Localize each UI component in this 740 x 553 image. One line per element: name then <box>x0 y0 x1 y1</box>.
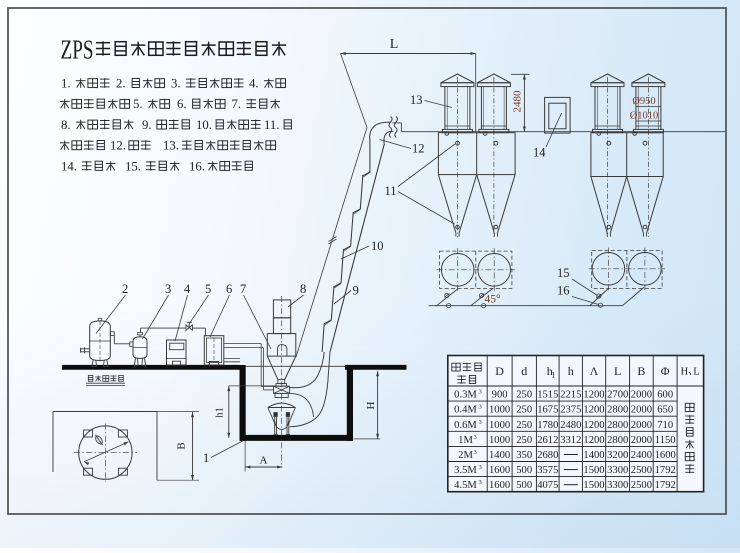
svg-text:H: H <box>681 367 689 378</box>
svg-text:10: 10 <box>371 239 384 253</box>
svg-text:1600: 1600 <box>489 480 510 491</box>
svg-text:2800: 2800 <box>607 420 628 431</box>
svg-text:7.: 7. <box>232 97 242 111</box>
svg-text:1200: 1200 <box>583 420 604 431</box>
svg-text:500: 500 <box>516 465 532 476</box>
svg-text:3: 3 <box>479 404 482 411</box>
svg-text:3.5M: 3.5M <box>454 465 477 476</box>
svg-text:600: 600 <box>657 390 673 401</box>
svg-text:1675: 1675 <box>537 405 558 416</box>
svg-text:2000: 2000 <box>631 420 652 431</box>
svg-text:500: 500 <box>516 480 532 491</box>
svg-text:L: L <box>693 367 699 378</box>
svg-text:H: H <box>365 401 377 409</box>
svg-text:15.: 15. <box>125 159 141 173</box>
svg-text:8: 8 <box>300 282 306 296</box>
svg-text:B: B <box>637 364 645 378</box>
svg-text:0.3M: 0.3M <box>454 390 477 401</box>
svg-text:1792: 1792 <box>655 480 676 491</box>
svg-text:1500: 1500 <box>583 465 604 476</box>
svg-text:3.: 3. <box>171 77 181 91</box>
svg-text:3: 3 <box>479 479 482 486</box>
svg-text:1200: 1200 <box>583 405 604 416</box>
svg-text:45°: 45° <box>485 294 502 306</box>
svg-text:2400: 2400 <box>631 450 652 461</box>
svg-text:8.: 8. <box>61 118 71 132</box>
svg-text:1780: 1780 <box>537 420 558 431</box>
svg-text:14.: 14. <box>61 159 77 173</box>
svg-text:710: 710 <box>657 420 673 431</box>
svg-text:0.6M: 0.6M <box>454 420 477 431</box>
svg-text:2000: 2000 <box>631 390 652 401</box>
svg-text:2680: 2680 <box>537 450 558 461</box>
svg-text:3: 3 <box>479 389 482 396</box>
svg-text:3: 3 <box>165 282 171 296</box>
svg-text:1: 1 <box>203 451 209 465</box>
svg-text:1792: 1792 <box>655 465 676 476</box>
svg-text:250: 250 <box>516 390 532 401</box>
svg-text:3300: 3300 <box>607 465 628 476</box>
svg-text:B: B <box>176 442 188 449</box>
svg-text:1.: 1. <box>61 77 71 91</box>
svg-text:2000: 2000 <box>631 435 652 446</box>
svg-text:Φ: Φ <box>661 364 670 378</box>
svg-text:900: 900 <box>492 390 508 401</box>
svg-text:16: 16 <box>557 284 570 298</box>
svg-text:Λ: Λ <box>590 364 599 378</box>
svg-text:2700: 2700 <box>607 390 628 401</box>
svg-text:4075: 4075 <box>537 480 558 491</box>
svg-text:3: 3 <box>479 419 482 426</box>
svg-text:3300: 3300 <box>607 480 628 491</box>
svg-text:650: 650 <box>657 405 673 416</box>
svg-text:3575: 3575 <box>537 465 558 476</box>
svg-text:2480: 2480 <box>512 90 524 113</box>
svg-text:h1: h1 <box>215 407 226 418</box>
svg-text:2500: 2500 <box>631 465 652 476</box>
svg-text:13: 13 <box>410 93 423 107</box>
svg-text:Ø1010: Ø1010 <box>630 111 659 122</box>
svg-text:1200: 1200 <box>583 435 604 446</box>
svg-text:12: 12 <box>412 142 425 156</box>
svg-text:5: 5 <box>205 282 211 296</box>
svg-text:1200: 1200 <box>583 390 604 401</box>
svg-text:3: 3 <box>479 464 482 471</box>
svg-text:d: d <box>521 364 527 378</box>
svg-text:2375: 2375 <box>560 405 581 416</box>
svg-text:1000: 1000 <box>489 405 510 416</box>
svg-text:11: 11 <box>385 184 397 198</box>
svg-text:A: A <box>260 455 268 467</box>
svg-text:2000: 2000 <box>631 405 652 416</box>
svg-text:250: 250 <box>516 435 532 446</box>
svg-text:7: 7 <box>240 282 246 296</box>
svg-text:13.: 13. <box>163 139 179 153</box>
svg-text:1500: 1500 <box>583 480 604 491</box>
svg-text:1600: 1600 <box>489 465 510 476</box>
svg-text:9: 9 <box>353 284 359 298</box>
svg-text:3: 3 <box>474 449 477 456</box>
svg-text:6: 6 <box>226 282 232 296</box>
svg-text:2.: 2. <box>116 77 126 91</box>
svg-text:6.: 6. <box>177 97 187 111</box>
svg-text:2M: 2M <box>458 450 473 461</box>
svg-text:Ø950: Ø950 <box>632 96 655 107</box>
svg-text:L: L <box>390 37 399 52</box>
svg-text:ZPS: ZPS <box>61 35 94 65</box>
svg-text:16.: 16. <box>189 159 205 173</box>
svg-text:1515: 1515 <box>537 390 558 401</box>
svg-text:3200: 3200 <box>607 450 628 461</box>
svg-text:14: 14 <box>533 146 546 160</box>
svg-text:1400: 1400 <box>583 450 604 461</box>
svg-text:1600: 1600 <box>655 450 676 461</box>
svg-text:1400: 1400 <box>489 450 510 461</box>
svg-text:11.: 11. <box>264 118 280 132</box>
svg-text:2500: 2500 <box>631 480 652 491</box>
svg-text:9.: 9. <box>142 118 152 132</box>
svg-text:2: 2 <box>122 282 128 296</box>
svg-text:1000: 1000 <box>489 435 510 446</box>
svg-text:1000: 1000 <box>489 420 510 431</box>
svg-text:250: 250 <box>516 420 532 431</box>
svg-text:1150: 1150 <box>655 435 676 446</box>
svg-text:1: 1 <box>551 371 555 380</box>
svg-text:10.: 10. <box>196 118 212 132</box>
svg-text:2215: 2215 <box>560 390 581 401</box>
svg-text:L: L <box>614 364 621 378</box>
svg-text:2480: 2480 <box>560 420 581 431</box>
svg-text:350: 350 <box>516 450 532 461</box>
svg-text:2612: 2612 <box>537 435 558 446</box>
svg-text:2800: 2800 <box>607 405 628 416</box>
svg-text:3: 3 <box>474 434 477 441</box>
svg-text:4.5M: 4.5M <box>454 480 477 491</box>
svg-text:2800: 2800 <box>607 435 628 446</box>
svg-text:250: 250 <box>516 405 532 416</box>
svg-text:12.: 12. <box>110 139 126 153</box>
svg-text:4.: 4. <box>249 77 259 91</box>
svg-text:0.4M: 0.4M <box>454 405 477 416</box>
svg-text:D: D <box>495 364 504 378</box>
svg-text:4: 4 <box>184 282 191 296</box>
svg-text:1M: 1M <box>458 435 473 446</box>
svg-text:5.: 5. <box>133 97 143 111</box>
svg-text:h: h <box>568 364 574 378</box>
svg-text:3312: 3312 <box>560 435 581 446</box>
svg-text:15: 15 <box>557 266 570 280</box>
